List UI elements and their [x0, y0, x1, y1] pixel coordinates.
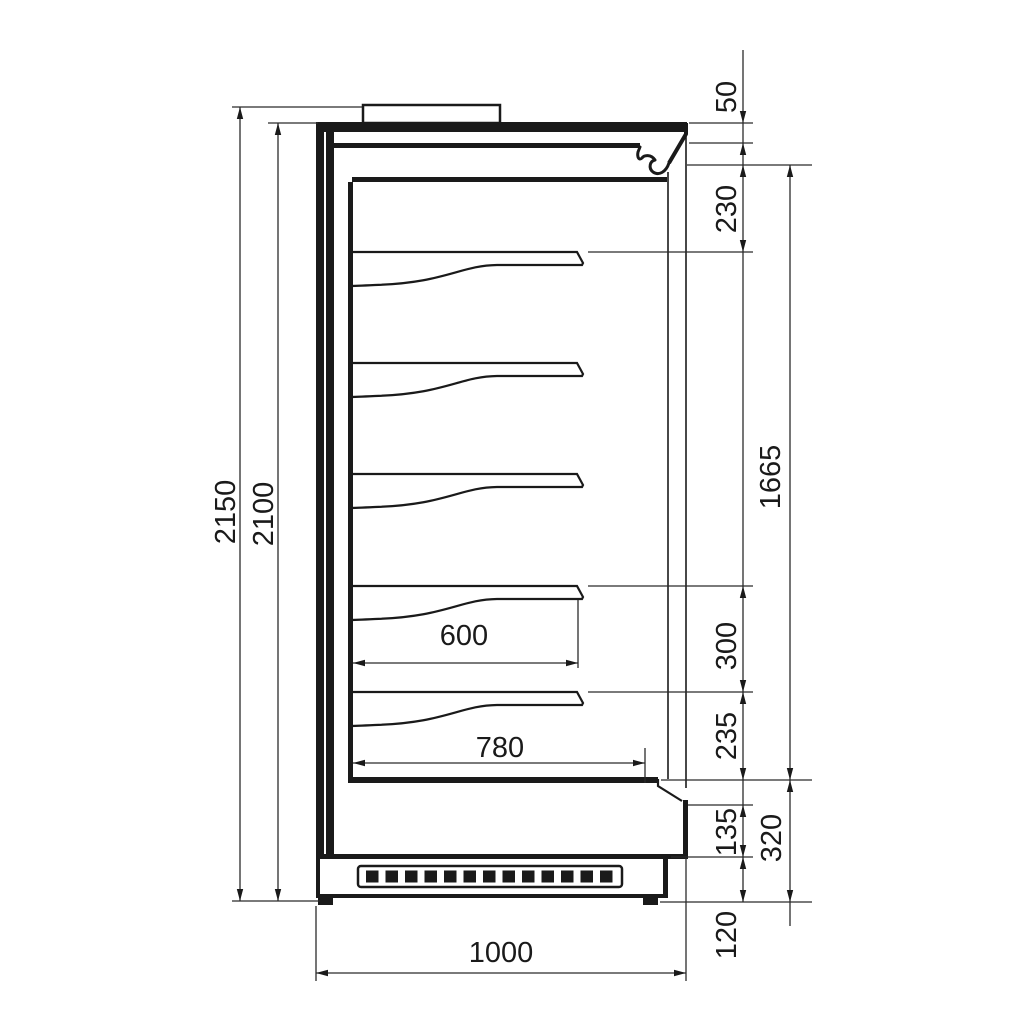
canopy-hook-profile — [638, 147, 669, 174]
well-floor-depth-label: 780 — [476, 732, 524, 764]
base-front-face — [663, 859, 668, 898]
cabinet-structure — [316, 105, 688, 905]
base-left-face — [316, 854, 320, 898]
rear-outer-panel — [316, 122, 324, 856]
shelves — [348, 252, 583, 726]
base-section-height-label: 320 — [756, 814, 788, 862]
technical-drawing-page: 2150 2100 50 230 1665 300 235 135 320 12… — [0, 0, 1024, 1024]
base-bottom-panel — [318, 894, 667, 898]
dimension-annotations: 2150 2100 50 230 1665 300 235 135 320 12… — [210, 50, 812, 981]
shelf-spacing-label: 300 — [711, 622, 743, 670]
shelf-depth-label: 600 — [440, 620, 488, 652]
rear-foot — [318, 898, 333, 905]
base-vent-grille — [358, 866, 622, 887]
display-opening-height-label: 1665 — [755, 445, 787, 510]
body-height-label: 2100 — [248, 482, 280, 547]
canopy-to-first-shelf-label: 230 — [711, 185, 743, 233]
shelf-4 — [348, 586, 583, 620]
overall-height-label: 2150 — [210, 480, 242, 545]
interior-ceiling — [352, 177, 667, 182]
shelf-5 — [348, 692, 583, 726]
shelf-3 — [348, 474, 583, 508]
shelf-1 — [348, 252, 583, 286]
last-shelf-to-well-floor-label: 235 — [711, 712, 743, 760]
multideck-cabinet-section-drawing: 2150 2100 50 230 1665 300 235 135 320 12… — [0, 0, 1024, 1024]
top-deck-panel — [316, 122, 687, 132]
interior-rear-wall — [348, 182, 353, 780]
front-lower-face — [683, 800, 688, 856]
canopy-front-height-label: 50 — [711, 81, 743, 113]
canopy-underside — [334, 143, 640, 148]
roof-topper-box — [363, 105, 500, 123]
front-floor-step — [658, 779, 682, 801]
front-lower-panel-label: 135 — [711, 808, 743, 856]
rear-inner-panel — [326, 132, 334, 856]
front-foot — [643, 898, 658, 905]
overall-depth-label: 1000 — [469, 937, 534, 969]
plinth-height-label: 120 — [711, 911, 743, 959]
base-top-panel — [316, 854, 688, 859]
shelf-2 — [348, 363, 583, 397]
dimension-labels: 2150 2100 50 230 1665 300 235 135 320 12… — [210, 81, 788, 969]
interior-well-floor — [348, 777, 658, 783]
